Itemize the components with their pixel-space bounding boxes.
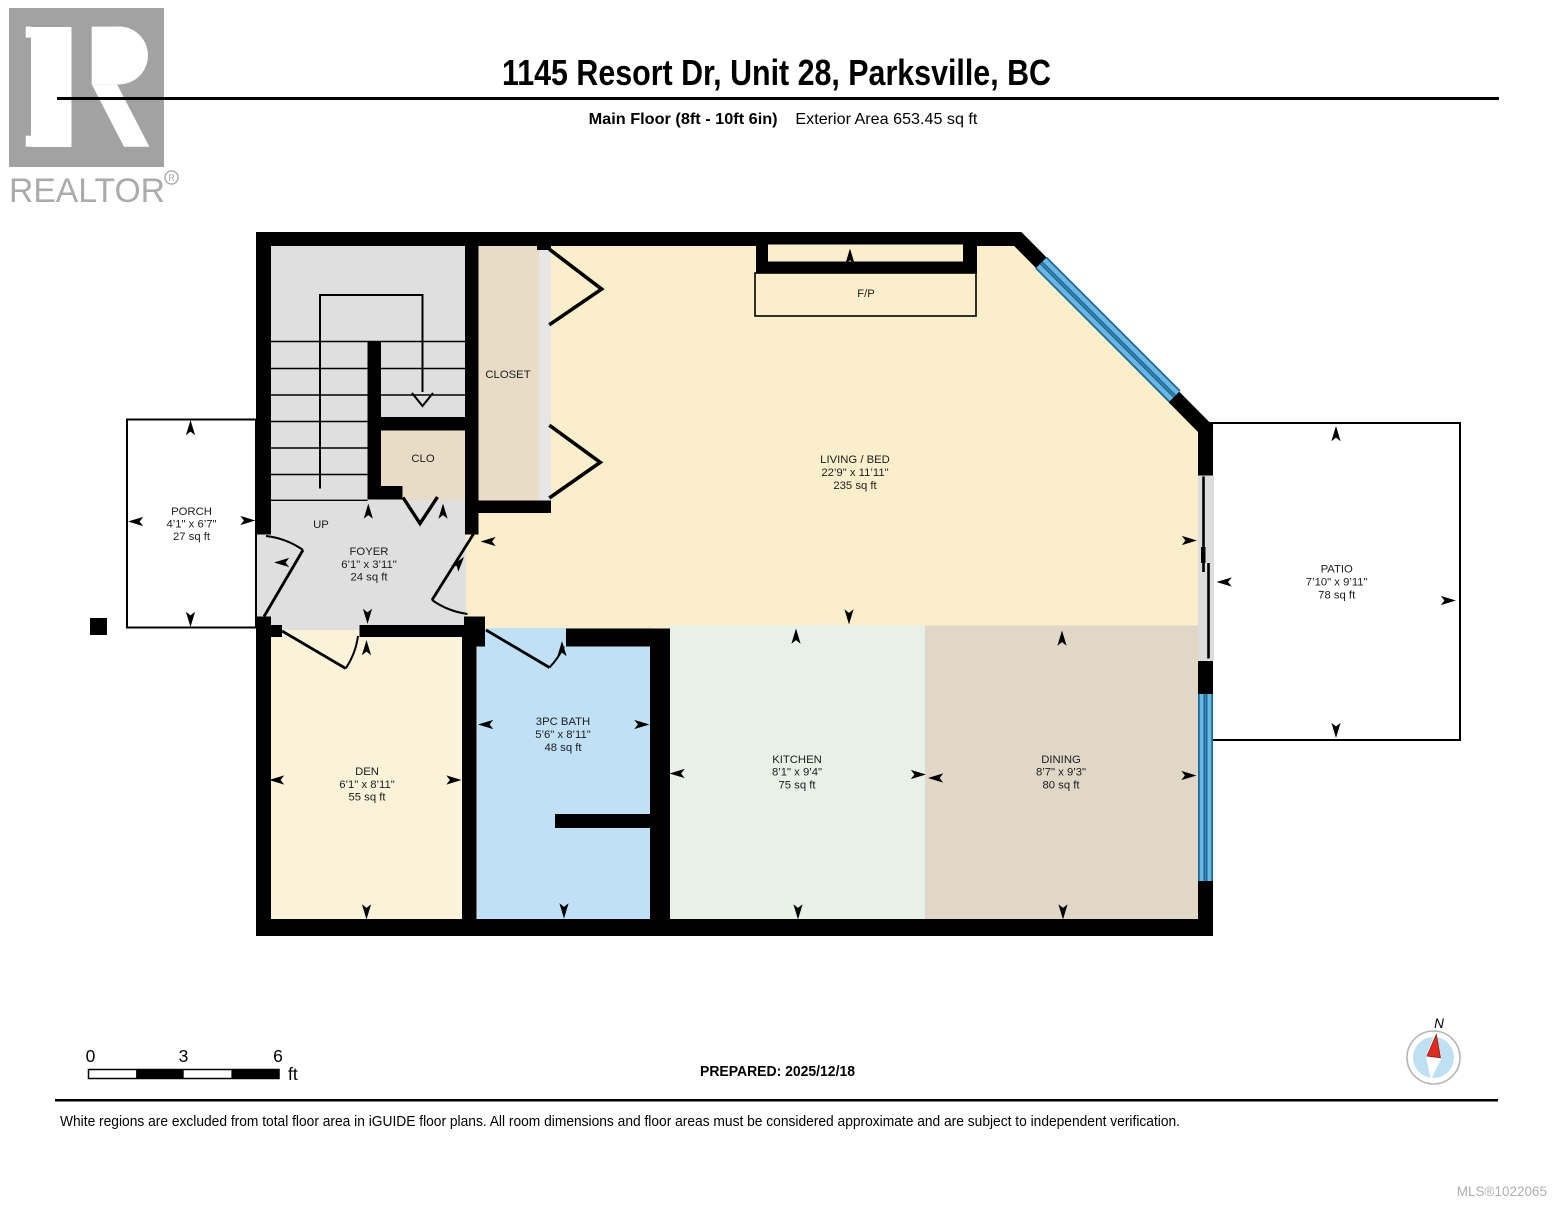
svg-text:22’9" x 11’11": 22’9" x 11’11" [821,467,888,479]
svg-text:235 sq ft: 235 sq ft [833,480,877,492]
svg-text:27 sq ft: 27 sq ft [173,531,211,543]
svg-text:PREPARED: 2025/12/18: PREPARED: 2025/12/18 [700,1063,855,1080]
svg-text:N: N [1434,1016,1444,1031]
svg-text:6’1" x 3’11": 6’1" x 3’11" [341,559,397,571]
svg-text:REALTOR: REALTOR [9,172,165,210]
svg-text:6: 6 [273,1046,283,1066]
svg-text:UP: UP [313,519,329,531]
svg-text:1145 Resort Dr, Unit 28, Parks: 1145 Resort Dr, Unit 28, Parksville, BC [502,52,1051,93]
svg-text:F/P: F/P [857,288,875,300]
svg-text:80 sq ft: 80 sq ft [1042,780,1080,792]
svg-text:Main Floor (8ft - 10ft 6in): Main Floor (8ft - 10ft 6in) [589,111,778,128]
svg-text:MLS®1022065: MLS®1022065 [1457,1184,1547,1199]
svg-text:3: 3 [179,1046,189,1066]
svg-text:3PC BATH: 3PC BATH [536,716,590,728]
svg-text:ft: ft [288,1064,298,1084]
svg-text:White regions are excluded fro: White regions are excluded from total fl… [60,1113,1180,1130]
svg-text:4’1" x 6’7": 4’1" x 6’7" [166,519,216,531]
svg-text:CLOSET: CLOSET [485,369,530,381]
svg-text:55 sq ft: 55 sq ft [348,792,386,804]
svg-text:PORCH: PORCH [171,506,212,518]
svg-text:DEN: DEN [355,766,379,778]
svg-text:R: R [168,173,175,183]
svg-text:KITCHEN: KITCHEN [772,754,822,766]
svg-text:48 sq ft: 48 sq ft [544,742,582,754]
svg-text:CLO: CLO [411,453,434,465]
svg-text:24 sq ft: 24 sq ft [350,572,388,584]
svg-text:LIVING / BED: LIVING / BED [820,454,890,466]
svg-text:5’6" x 8’11": 5’6" x 8’11" [535,729,591,741]
svg-text:75 sq ft: 75 sq ft [778,780,816,792]
svg-text:8’7" x 9’3": 8’7" x 9’3" [1036,767,1086,779]
svg-text:Exterior Area 653.45 sq ft: Exterior Area 653.45 sq ft [795,111,978,128]
svg-text:7’10" x 9’11": 7’10" x 9’11" [1306,577,1368,589]
svg-text:6’1" x 8’11": 6’1" x 8’11" [339,779,395,791]
svg-text:78 sq ft: 78 sq ft [1318,590,1356,602]
svg-text:0: 0 [86,1046,96,1066]
svg-text:DINING: DINING [1041,754,1081,766]
svg-text:PATIO: PATIO [1321,564,1353,576]
svg-text:FOYER: FOYER [350,546,389,558]
svg-text:8’1" x 9’4": 8’1" x 9’4" [772,767,822,779]
